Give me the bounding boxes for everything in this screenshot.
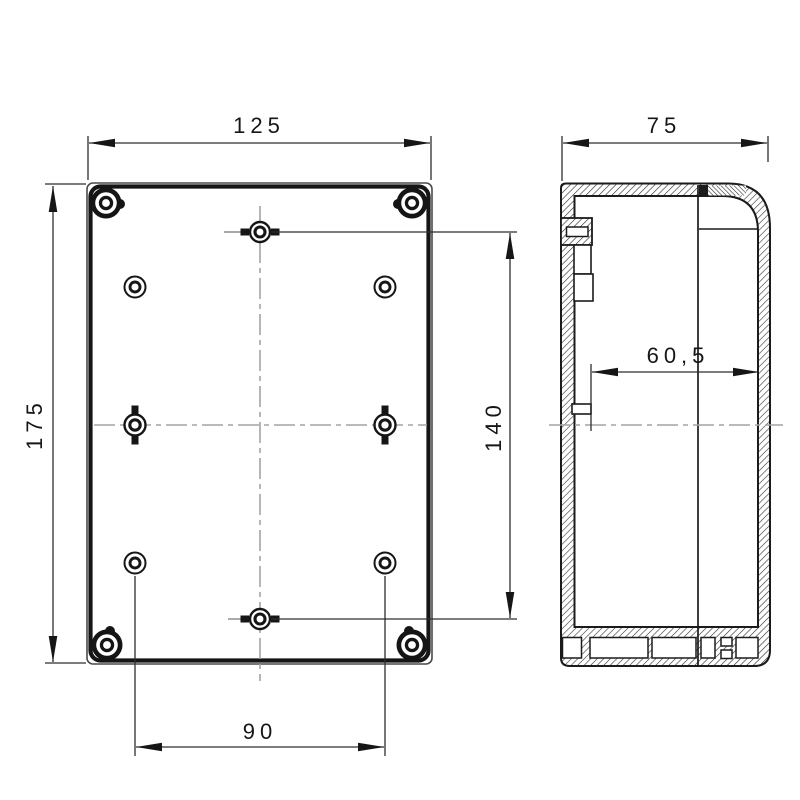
arrowhead	[741, 139, 767, 148]
side-wall-channel	[574, 245, 591, 274]
arrowhead	[358, 743, 384, 752]
mounting-hole	[125, 553, 146, 574]
arrowhead	[89, 139, 115, 148]
arrowhead	[506, 233, 515, 259]
side-bottom-cavity	[590, 638, 648, 659]
dim-label-front-width: 125	[233, 113, 285, 138]
arrowhead	[136, 743, 162, 752]
dim-label-side-depth: 75	[647, 113, 681, 138]
front-view	[87, 183, 432, 681]
arrowhead	[733, 368, 759, 377]
arrowhead	[592, 368, 618, 377]
mounting-hole	[375, 553, 396, 574]
dim-label-side-inner-depth: 60,5	[647, 343, 710, 368]
dimension-front-height: 175	[22, 184, 86, 663]
arrowhead	[49, 636, 58, 662]
mounting-hole	[125, 277, 146, 298]
technical-drawing: 125 175 140 90	[0, 0, 800, 800]
side-section-view	[549, 184, 783, 667]
side-bottom-cavity	[736, 638, 758, 659]
side-bottom-cavity	[563, 638, 582, 659]
arrowhead	[506, 592, 515, 618]
side-wall-step-upper	[561, 218, 592, 245]
side-bottom-cavity	[721, 638, 732, 647]
mounting-hole	[375, 277, 396, 298]
arrowhead	[563, 139, 589, 148]
side-wall-step-mid	[574, 274, 593, 301]
dim-label-front-height: 175	[22, 398, 47, 450]
side-wall-step-lower	[572, 404, 591, 414]
side-bottom-cavity	[721, 650, 732, 659]
arrowhead	[404, 139, 430, 148]
dimension-front-width: 125	[88, 113, 431, 180]
side-bottom-cavity	[652, 638, 696, 659]
dim-label-hole-spacing-vertical: 140	[481, 400, 506, 452]
dimension-side-depth: 75	[562, 113, 768, 181]
drawing-svg: 125 175 140 90	[0, 0, 800, 800]
lid-section-hatch	[708, 186, 746, 196]
arrowhead	[49, 186, 58, 212]
side-bottom-cavity	[701, 638, 715, 659]
dimension-side-inner-depth: 60,5	[591, 343, 759, 431]
dim-label-hole-spacing-horizontal: 90	[243, 719, 277, 744]
lid-section-detail	[699, 185, 708, 196]
